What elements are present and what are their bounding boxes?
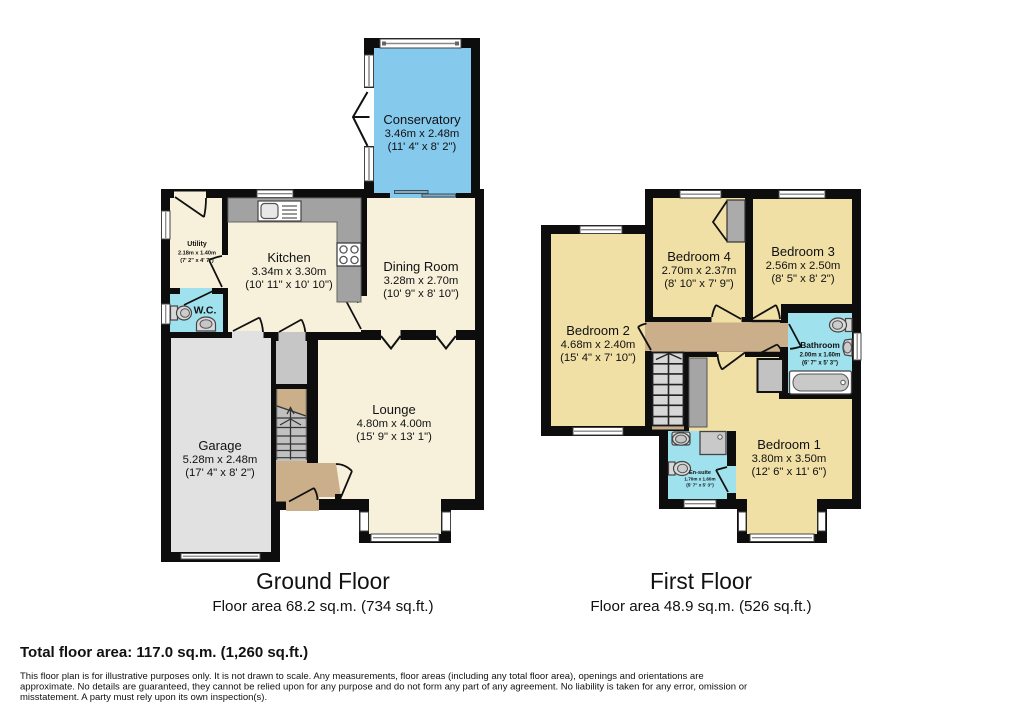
svg-text:(5' 7" x 5' 3"): (5' 7" x 5' 3") [686,483,714,488]
svg-text:1.70m x 1.60m: 1.70m x 1.60m [684,477,715,482]
svg-text:Ground Floor: Ground Floor [256,568,390,594]
svg-text:3.34m x 3.30m: 3.34m x 3.30m [252,266,327,278]
svg-text:First Floor: First Floor [650,568,753,594]
svg-text:Dining Room: Dining Room [383,259,458,274]
svg-text:approximate. No details are gu: approximate. No details are guaranteed, … [20,682,747,693]
svg-text:(10' 11" x 10' 10"): (10' 11" x 10' 10") [245,279,333,291]
svg-text:(7' 2" x 4' 7"): (7' 2" x 4' 7") [180,258,214,264]
svg-text:Conservatory: Conservatory [383,112,461,127]
svg-text:(8' 10" x 7' 9"): (8' 10" x 7' 9") [664,278,734,290]
svg-text:This floor plan is for illustr: This floor plan is for illustrative purp… [20,671,704,682]
svg-text:Kitchen: Kitchen [267,250,310,265]
svg-text:Total floor area: 117.0 sq.m.: Total floor area: 117.0 sq.m. (1,260 sq.… [20,644,308,661]
svg-text:(15' 4" x 7' 10"): (15' 4" x 7' 10") [560,352,636,364]
svg-text:2.56m x 2.50m: 2.56m x 2.50m [766,260,841,272]
svg-text:3.28m x 2.70m: 3.28m x 2.70m [384,275,459,287]
svg-text:En-suite: En-suite [689,470,711,476]
svg-text:2.70m x 2.37m: 2.70m x 2.37m [662,265,737,277]
svg-text:2.00m x 1.60m: 2.00m x 1.60m [800,353,841,359]
svg-text:(17' 4" x 8' 2"): (17' 4" x 8' 2") [185,467,255,479]
svg-text:Bedroom 1: Bedroom 1 [757,437,821,452]
svg-text:W.C.: W.C. [194,305,217,317]
svg-text:Bedroom 4: Bedroom 4 [667,249,731,264]
svg-text:3.80m x 3.50m: 3.80m x 3.50m [752,453,827,465]
svg-text:Utility: Utility [187,241,207,248]
svg-text:4.80m x 4.00m: 4.80m x 4.00m [357,418,432,430]
svg-text:(11' 4" x 8' 2"): (11' 4" x 8' 2") [388,141,457,153]
svg-text:Garage: Garage [198,438,241,453]
svg-text:Floor area 68.2 sq.m. (734 sq.: Floor area 68.2 sq.m. (734 sq.ft.) [212,598,433,615]
svg-text:(15' 9" x 13' 1"): (15' 9" x 13' 1") [356,431,432,443]
svg-text:Bedroom 3: Bedroom 3 [771,244,835,259]
svg-text:Floor area 48.9 sq.m. (526 sq.: Floor area 48.9 sq.m. (526 sq.ft.) [590,598,811,615]
svg-text:misstatement. A party must rel: misstatement. A party must rely upon its… [20,692,267,703]
svg-text:Bathroom: Bathroom [800,340,840,350]
svg-text:(6' 7" x 5' 3"): (6' 7" x 5' 3") [802,361,838,367]
svg-text:Bedroom 2: Bedroom 2 [566,323,630,338]
svg-text:(12' 6" x 11' 6"): (12' 6" x 11' 6") [752,466,827,478]
svg-text:Lounge: Lounge [372,402,415,417]
svg-text:(8' 5" x 8' 2"): (8' 5" x 8' 2") [771,273,834,285]
svg-text:5.28m x 2.48m: 5.28m x 2.48m [183,454,258,466]
svg-text:2.18m x 1.40m: 2.18m x 1.40m [178,251,216,257]
svg-text:3.46m x 2.48m: 3.46m x 2.48m [385,128,460,140]
svg-text:4.68m x 2.40m: 4.68m x 2.40m [561,339,636,351]
svg-text:(10' 9" x 8' 10"): (10' 9" x 8' 10") [383,288,459,300]
